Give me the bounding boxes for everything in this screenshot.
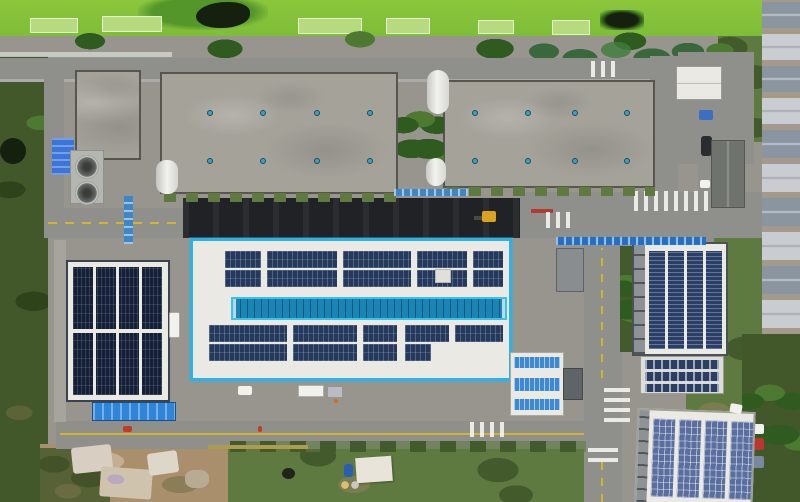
yellow-barrier (208, 445, 308, 449)
utility-structure (563, 368, 583, 400)
aerial-photo-scene (0, 0, 800, 502)
excavator-body (482, 211, 496, 222)
roof-vent (525, 110, 531, 116)
solar-array (514, 378, 560, 391)
crosswalk-top-road (591, 61, 617, 77)
right-solar-annex (640, 356, 724, 394)
building-wall-band (634, 244, 645, 354)
debris-pile (185, 470, 209, 488)
solar-array (209, 325, 287, 342)
solar-array (417, 251, 467, 268)
rooftop-unit (435, 269, 451, 283)
boundary-fence (0, 52, 172, 57)
solar-array-column (687, 251, 703, 349)
right-upper-solar-building (632, 242, 728, 356)
white-truck (169, 312, 180, 338)
solar-array (363, 325, 397, 342)
solar-array (267, 270, 337, 287)
red-car (123, 426, 132, 432)
factory-roof-right (443, 80, 655, 188)
blue-truck (699, 110, 713, 120)
solar-array (225, 270, 261, 287)
roof-vent (624, 110, 630, 116)
roof-vent (314, 158, 320, 164)
solar-array (645, 384, 719, 392)
white-speck (729, 403, 742, 414)
perimeter-path (54, 240, 66, 422)
roof-vent (525, 158, 531, 164)
white-silo-tank (426, 158, 446, 186)
blue-canopy (92, 402, 176, 421)
worker-dot (334, 399, 338, 403)
solar-annex-center (510, 352, 564, 416)
south-road-centerline (601, 462, 603, 502)
roof-vent (260, 158, 266, 164)
left-solar-building (66, 260, 170, 402)
roof-vent (207, 158, 213, 164)
worker-dot (258, 426, 262, 432)
roof-vent (624, 158, 630, 164)
small-utility-building (75, 70, 141, 160)
mid-road-new-asphalt (183, 198, 521, 238)
solar-array (267, 251, 337, 268)
materials-pile (298, 385, 324, 397)
roof-vent (472, 158, 478, 164)
skylight-monitor (231, 297, 507, 320)
crane-boom (394, 189, 468, 196)
blue-elevated-walkway (556, 237, 706, 245)
right-lower-solar-building (634, 408, 755, 502)
cooling-fan (75, 181, 99, 205)
roof-vent (472, 110, 478, 116)
crosswalk-mid-small (546, 212, 574, 228)
hedge-row (447, 187, 655, 196)
narrow-long-building (711, 140, 745, 208)
solar-array-column (651, 419, 676, 498)
solar-array-column (729, 421, 754, 500)
house-roof (762, 266, 800, 294)
white-silo-tank (427, 70, 449, 114)
hedge-row (164, 193, 396, 202)
roof-vent (207, 110, 213, 116)
crosswalk-bottom-road (470, 422, 508, 437)
house-roof (762, 2, 800, 28)
solar-array (473, 270, 503, 287)
house-roof (762, 130, 800, 158)
house-roof (762, 66, 800, 92)
scattered-drums (340, 480, 362, 490)
blue-barrels (344, 464, 353, 477)
roof-vent (572, 110, 578, 116)
debris-tarp (99, 466, 153, 500)
solar-array (473, 251, 503, 268)
solar-array-column (703, 420, 728, 499)
solar-array (225, 251, 261, 268)
roof-vent (367, 158, 373, 164)
roof-walkway (73, 329, 163, 333)
building-wall-band (636, 410, 649, 502)
roof-vent (572, 158, 578, 164)
solar-array (293, 344, 357, 361)
materials-pile (328, 387, 342, 397)
crane-mast (124, 196, 133, 244)
solar-array (514, 399, 560, 410)
mid-road-west-centerline (48, 222, 184, 224)
solar-array-column (649, 251, 665, 349)
solar-array (293, 325, 357, 342)
left-scrub-field (0, 56, 48, 502)
house-roof (762, 198, 800, 226)
factory-roof-left (160, 72, 398, 194)
house-roof (762, 232, 800, 260)
left-vertical-drive (44, 58, 64, 214)
roof-vent (260, 110, 266, 116)
solar-array-column (677, 419, 702, 498)
solar-array (645, 360, 719, 369)
solar-array (405, 344, 431, 361)
house-roof (762, 164, 800, 192)
dark-well (282, 468, 295, 479)
white-roof-shed (676, 66, 722, 100)
solar-array (514, 357, 560, 368)
row-houses-strip (762, 0, 800, 340)
left-water-patch (0, 138, 26, 164)
roof-vent (367, 110, 373, 116)
highlighted-solar-building (190, 238, 512, 381)
white-van (238, 386, 252, 395)
white-storage-tank (156, 160, 178, 194)
solar-array (209, 344, 287, 361)
debris-tarp (147, 450, 180, 476)
solar-array (405, 325, 449, 342)
solar-array (363, 344, 397, 361)
house-roof (762, 34, 800, 60)
solar-array-column (706, 251, 722, 349)
solar-array-column (668, 251, 684, 349)
white-speck (700, 180, 710, 188)
small-rooftop-structure (556, 248, 584, 292)
crosswalk-junction-north (604, 388, 630, 422)
solar-array (645, 372, 719, 381)
south-road-centerline (601, 248, 603, 378)
solar-array (455, 325, 503, 342)
crosswalk-junction-south (588, 445, 618, 462)
cooling-fan (75, 155, 99, 179)
house-roof (762, 98, 800, 124)
house-roof (762, 300, 800, 328)
solar-array (343, 251, 411, 268)
solar-array (343, 270, 411, 287)
roof-vent (314, 110, 320, 116)
